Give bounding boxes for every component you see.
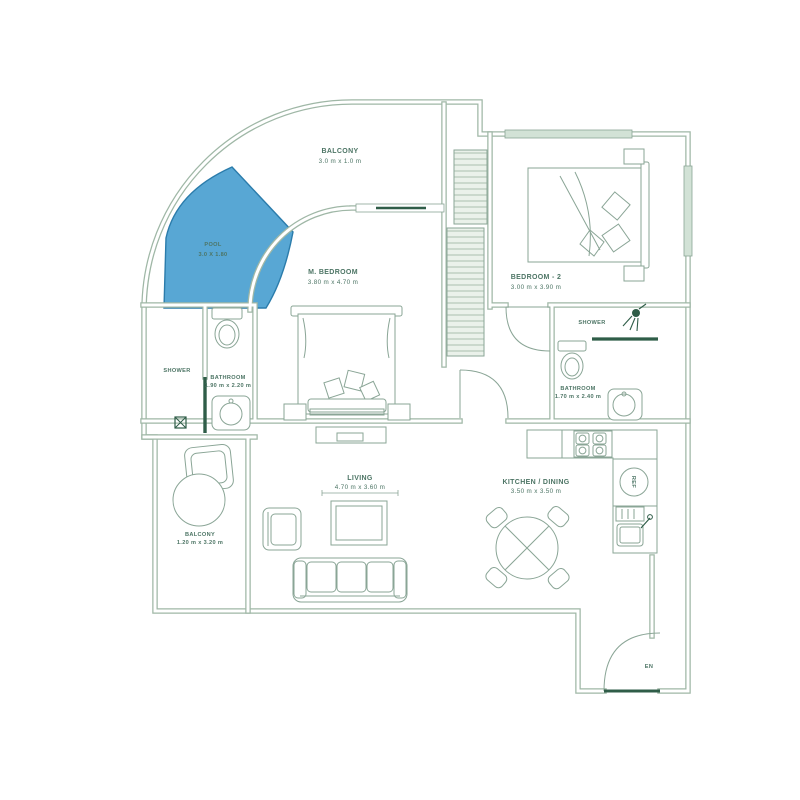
toilet-icon bbox=[558, 341, 586, 379]
living-label: LIVING bbox=[347, 475, 373, 482]
toilet-icon bbox=[212, 308, 242, 348]
entry-label: EN bbox=[645, 664, 653, 670]
window-right-wall bbox=[684, 166, 692, 256]
door-entrance bbox=[604, 633, 660, 691]
master-bedroom-dims: 3.80 m x 4.70 m bbox=[308, 279, 358, 286]
bathroom-left-label: BATHROOM bbox=[210, 375, 245, 381]
shower-right-label: SHOWER bbox=[578, 320, 605, 326]
balcony-top: BALCONY 3.0 m x 1.0 m bbox=[319, 148, 362, 165]
pool-dims: 3.0 X 1.80 bbox=[198, 252, 227, 258]
wardrobe-lower bbox=[447, 228, 484, 356]
bedroom2-dims: 3.00 m x 3.90 m bbox=[511, 284, 561, 291]
washbasin-icon bbox=[608, 389, 642, 420]
balcony-left: BALCONY 1.20 m x 3.20 m bbox=[173, 444, 234, 546]
master-bedroom-label: M. BEDROOM bbox=[308, 269, 358, 276]
window-bedroom2-top bbox=[505, 130, 632, 138]
living-room: LIVING 4.70 m x 3.60 m bbox=[263, 475, 407, 602]
balcony-table bbox=[173, 474, 225, 526]
kitchen-label: KITCHEN / DINING bbox=[502, 479, 569, 486]
fridge-label: REF bbox=[630, 476, 636, 488]
bed-bedroom2 bbox=[528, 149, 649, 281]
pool-label: POOL bbox=[204, 242, 221, 248]
bathroom-right-label: BATHROOM bbox=[560, 386, 595, 392]
bathroom-right-dims: 1.70 m x 2.40 m bbox=[555, 394, 601, 400]
bathroom-left-dims: 1.90 m x 2.20 m bbox=[205, 383, 251, 389]
bedroom-2: BEDROOM - 2 3.00 m x 3.90 m bbox=[511, 149, 649, 291]
sofa bbox=[293, 558, 407, 602]
master-bedroom: M. BEDROOM 3.80 m x 4.70 m bbox=[284, 269, 410, 443]
door-master-bedroom bbox=[460, 370, 508, 418]
balcony-left-dims: 1.20 m x 3.20 m bbox=[177, 540, 223, 546]
balcony-top-dims: 3.0 m x 1.0 m bbox=[319, 158, 362, 165]
wardrobe-upper bbox=[454, 150, 487, 224]
dining-table bbox=[484, 504, 571, 590]
bedroom2-label: BEDROOM - 2 bbox=[511, 274, 562, 281]
floor-plan-canvas: SHOWER BATHROOM 1.90 m x 2.20 m SHOWER B… bbox=[0, 0, 800, 800]
tv-console bbox=[316, 427, 386, 443]
kitchen-dims: 3.50 m x 3.50 m bbox=[511, 488, 561, 495]
kitchen: REF KITCHEN / DINING 3.50 m x 3.50 m bbox=[484, 430, 657, 591]
balcony-top-label: BALCONY bbox=[321, 148, 358, 155]
bed-master bbox=[284, 306, 410, 420]
door-bedroom2 bbox=[506, 307, 550, 351]
coffee-table bbox=[331, 501, 387, 545]
floor-plan-page: SHOWER BATHROOM 1.90 m x 2.20 m SHOWER B… bbox=[0, 0, 800, 800]
armchair bbox=[263, 508, 301, 550]
living-dims: 4.70 m x 3.60 m bbox=[335, 484, 385, 491]
shower-head-icon bbox=[623, 304, 646, 331]
washbasin-icon bbox=[212, 396, 250, 430]
bathroom-2: SHOWER BATHROOM 1.70 m x 2.40 m bbox=[555, 304, 658, 420]
shower-left-label: SHOWER bbox=[163, 368, 190, 374]
wardrobes bbox=[447, 150, 487, 356]
balcony-left-label: BALCONY bbox=[185, 532, 215, 538]
